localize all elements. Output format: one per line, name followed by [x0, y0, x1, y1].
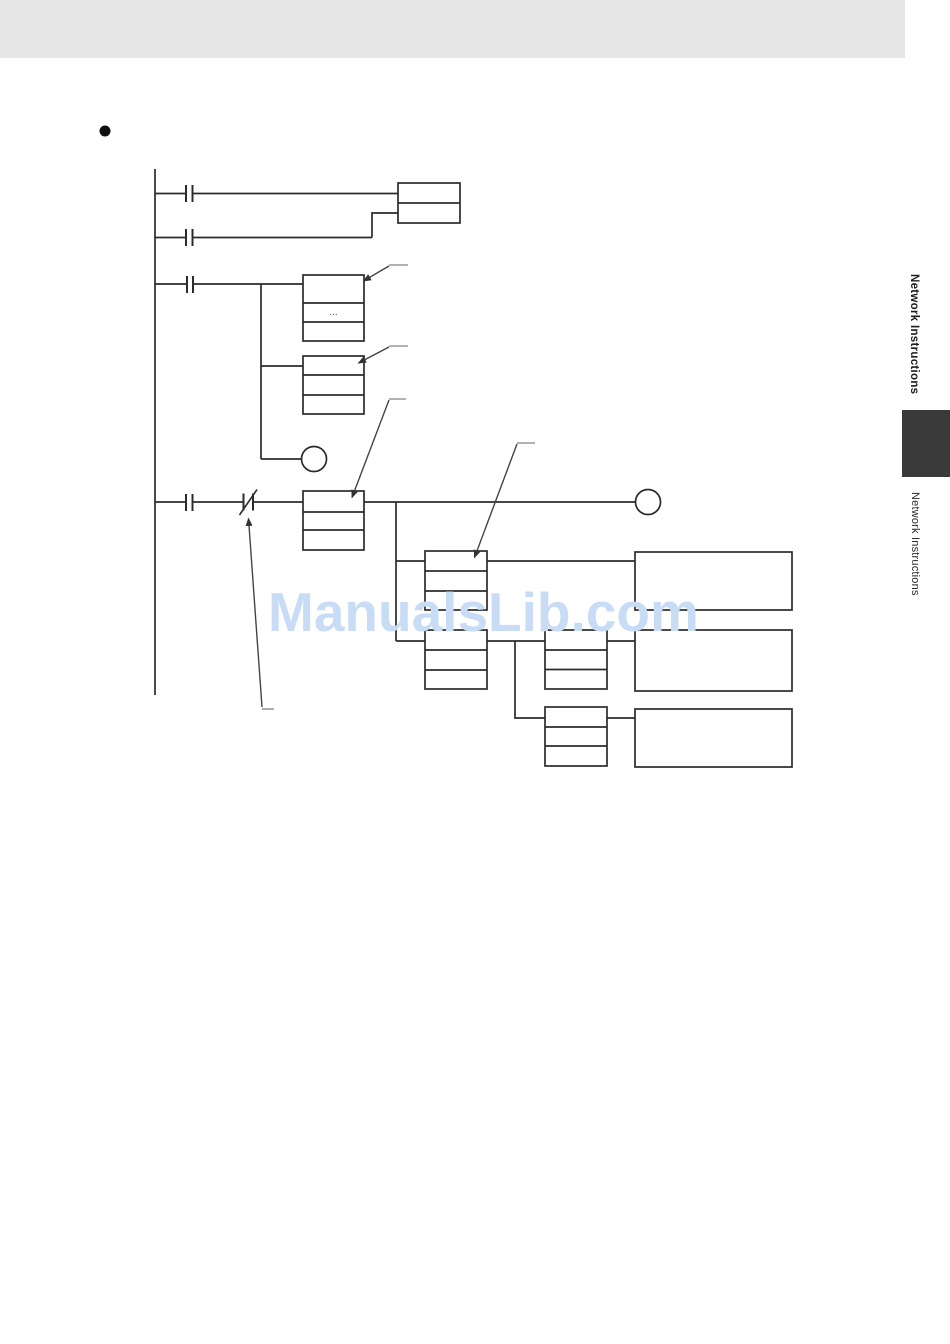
output-coil-1: [261, 447, 327, 472]
rung-2: [155, 213, 398, 246]
callout-arrow-stack: [475, 444, 518, 558]
sidebar-running-title-vertical: Network Instructions: [909, 492, 921, 596]
function-block-3: [303, 491, 364, 550]
callout-arrow-nc-contact: [249, 519, 263, 708]
block-ellipsis: ...: [329, 307, 337, 318]
ladder-network: [155, 169, 792, 767]
ladder-diagram: ...: [0, 0, 950, 1344]
sidebar-chapter-title-vertical: Network Instructions: [908, 274, 920, 394]
rung-3: [155, 276, 303, 459]
chapter-index-tab: [902, 410, 950, 477]
rung-1: [155, 185, 398, 202]
function-block-2: [261, 356, 364, 414]
memory-stack-bottom: [545, 707, 607, 766]
list-bullet: [100, 126, 111, 137]
watermark: ManualsLib.com: [268, 585, 699, 640]
label-box-3: [635, 709, 792, 767]
callout-arrow-block2: [359, 347, 390, 363]
manual-page: Network Instructions Network Instruction…: [0, 0, 950, 1344]
instruction-box-top: [398, 183, 460, 223]
callout-arrow-block1: [364, 266, 390, 281]
output-coil-2: [636, 490, 661, 515]
